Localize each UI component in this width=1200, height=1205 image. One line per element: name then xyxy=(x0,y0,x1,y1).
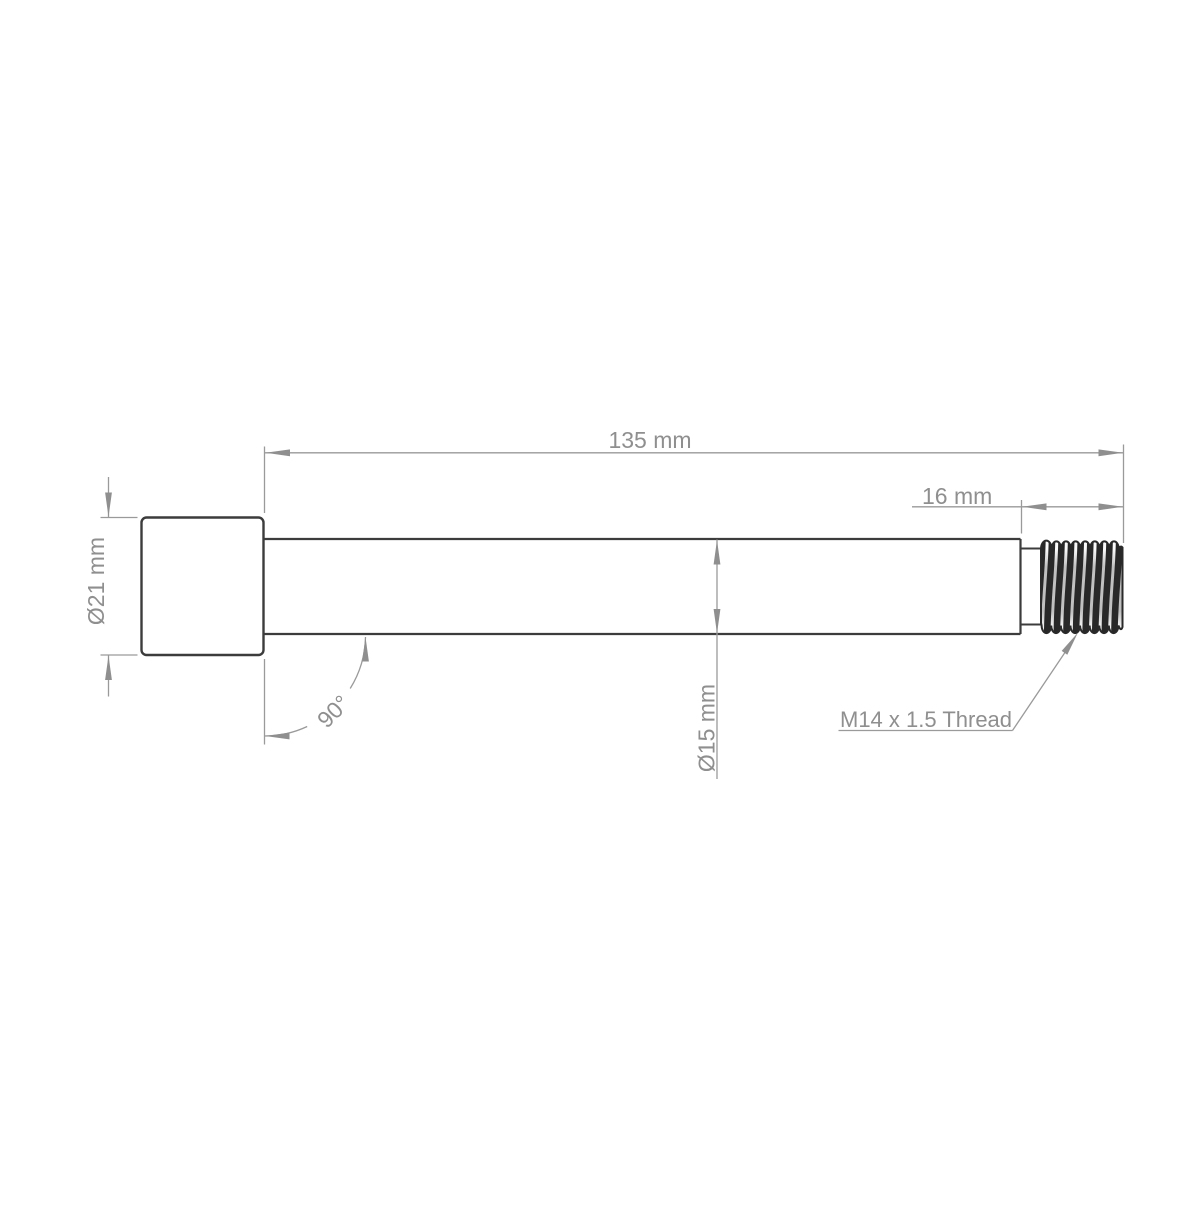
svg-text:135 mm: 135 mm xyxy=(608,427,691,453)
svg-text:Ø15 mm: Ø15 mm xyxy=(694,684,720,772)
svg-text:16 mm: 16 mm xyxy=(922,483,992,509)
svg-text:Ø21 mm: Ø21 mm xyxy=(83,537,109,625)
svg-text:M14 x 1.5 Thread: M14 x 1.5 Thread xyxy=(840,707,1012,732)
